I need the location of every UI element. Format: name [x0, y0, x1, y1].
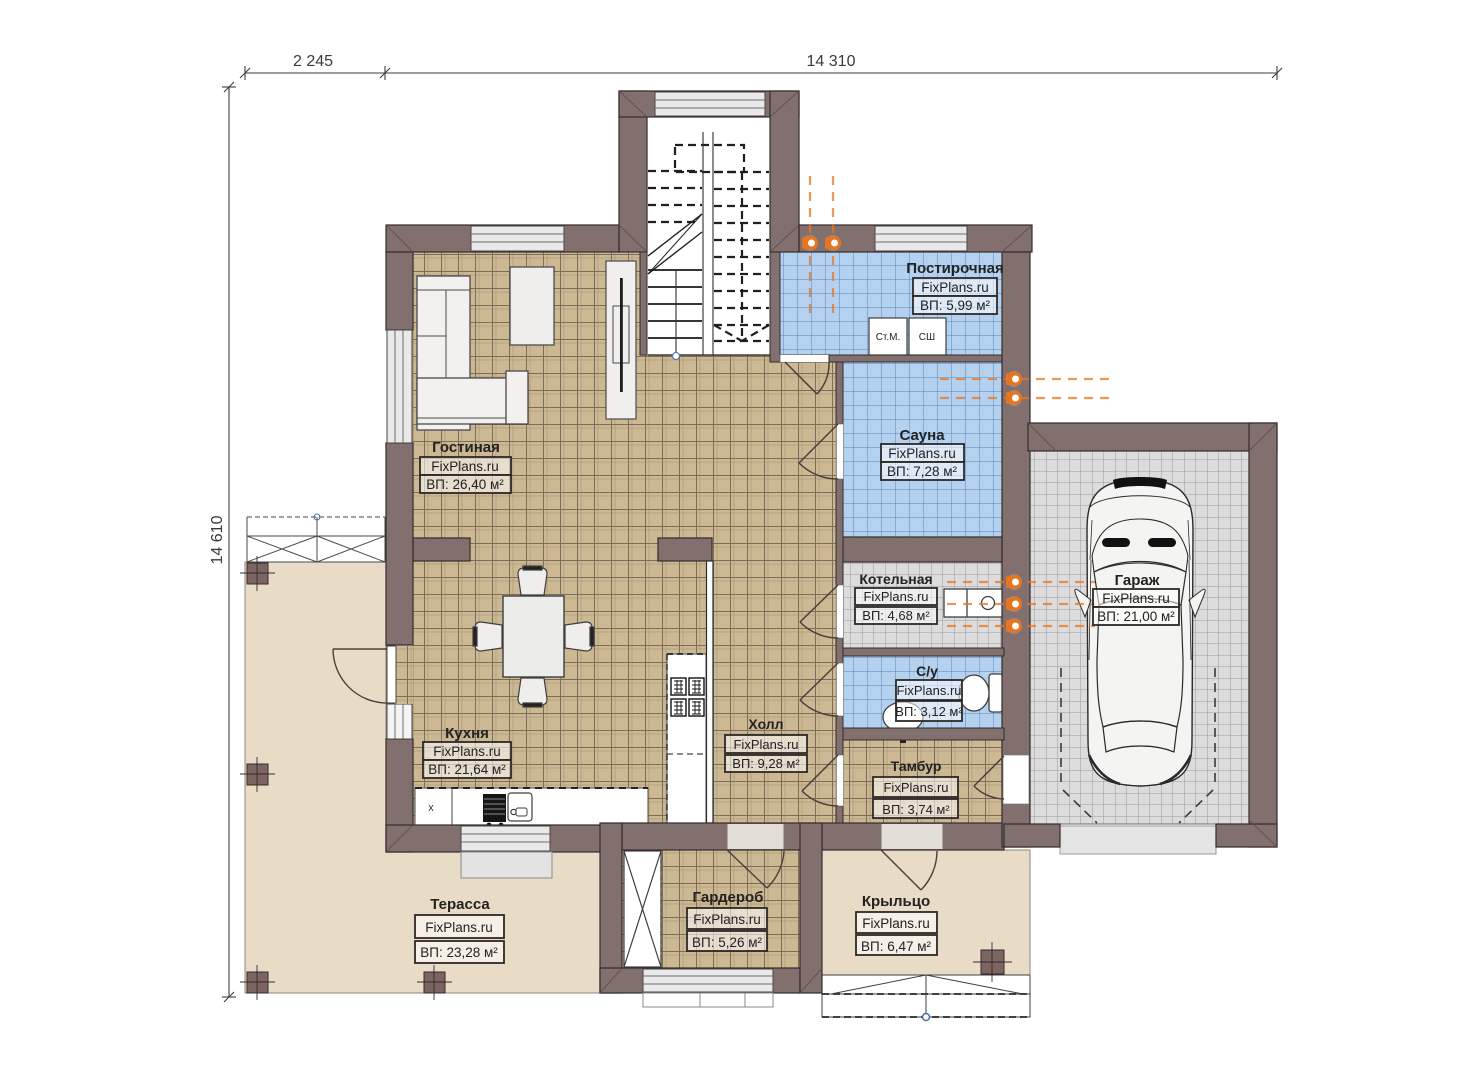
svg-text:ВП: 4,68 м²: ВП: 4,68 м² [862, 608, 930, 623]
svg-text:Ст.М.: Ст.М. [876, 332, 901, 343]
svg-text:Холл: Холл [748, 716, 783, 732]
svg-text:ВП: 5,26 м²: ВП: 5,26 м² [692, 935, 763, 950]
svg-text:FixPlans.ru: FixPlans.ru [921, 280, 989, 295]
svg-text:Котельная: Котельная [859, 571, 932, 587]
svg-text:Постирочная: Постирочная [906, 260, 1003, 277]
svg-text:ВП: 21,00 м²: ВП: 21,00 м² [1097, 609, 1175, 624]
svg-text:FixPlans.ru: FixPlans.ru [1102, 591, 1170, 606]
svg-text:FixPlans.ru: FixPlans.ru [863, 589, 928, 604]
svg-text:FixPlans.ru: FixPlans.ru [433, 744, 501, 759]
svg-text:ВП: 21,64 м²: ВП: 21,64 м² [428, 762, 506, 777]
svg-text:Сауна: Сауна [899, 427, 945, 444]
svg-text:FixPlans.ru: FixPlans.ru [431, 459, 499, 474]
svg-text:FixPlans.ru: FixPlans.ru [888, 446, 956, 461]
svg-text:Гараж: Гараж [1115, 572, 1160, 589]
svg-text:ВП: 6,47 м²: ВП: 6,47 м² [861, 939, 932, 954]
svg-text:Крыльцо: Крыльцо [862, 893, 930, 910]
svg-text:Тамбур: Тамбур [891, 758, 942, 774]
svg-text:ВП: 3,74 м²: ВП: 3,74 м² [882, 802, 950, 817]
svg-text:FixPlans.ru: FixPlans.ru [862, 916, 930, 931]
svg-text:Кухня: Кухня [445, 725, 489, 742]
svg-text:ВП: 23,28 м²: ВП: 23,28 м² [420, 945, 498, 960]
svg-text:2 245: 2 245 [293, 53, 333, 70]
svg-text:С/у: С/у [916, 663, 938, 679]
svg-text:14 310: 14 310 [807, 53, 856, 70]
svg-text:ВП: 7,28 м²: ВП: 7,28 м² [887, 464, 958, 479]
svg-text:x: x [428, 802, 434, 814]
svg-text:ВП: 5,99 м²: ВП: 5,99 м² [920, 298, 991, 313]
svg-text:СШ: СШ [919, 332, 935, 343]
svg-text:Гардероб: Гардероб [693, 889, 764, 906]
svg-text:FixPlans.ru: FixPlans.ru [425, 920, 493, 935]
svg-text:ВП: 3,12 м²: ВП: 3,12 м² [895, 704, 963, 719]
svg-text:ВП: 9,28 м²: ВП: 9,28 м² [732, 756, 800, 771]
svg-text:FixPlans.ru: FixPlans.ru [883, 780, 948, 795]
svg-text:Гостиная: Гостиная [432, 439, 500, 456]
svg-text:Терасса: Терасса [430, 896, 490, 913]
svg-text:FixPlans.ru: FixPlans.ru [693, 912, 761, 927]
svg-text:FixPlans.ru: FixPlans.ru [896, 683, 961, 698]
svg-text:14 610: 14 610 [209, 515, 226, 564]
svg-text:ВП: 26,40 м²: ВП: 26,40 м² [426, 477, 504, 492]
svg-text:FixPlans.ru: FixPlans.ru [733, 737, 798, 752]
